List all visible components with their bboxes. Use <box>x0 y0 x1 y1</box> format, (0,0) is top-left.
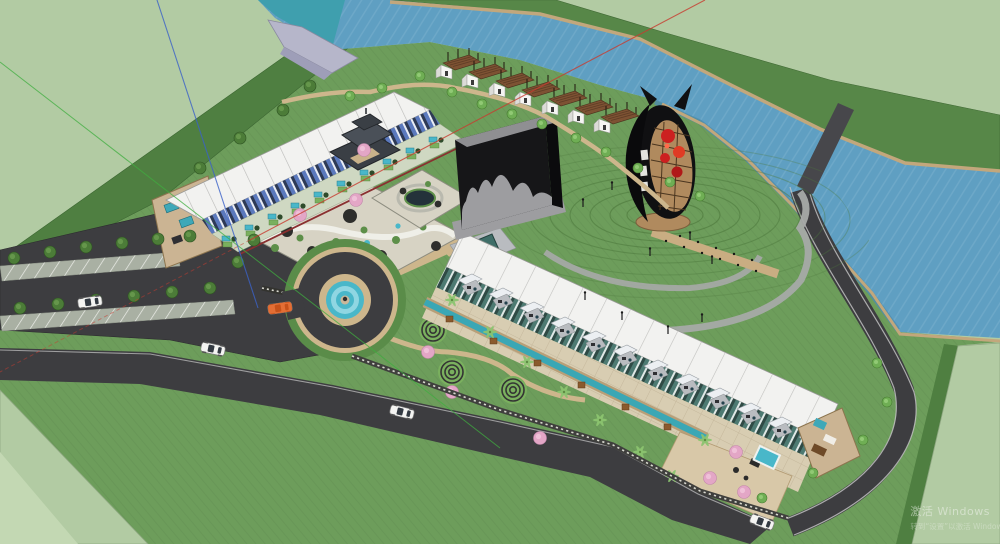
fountain-statue <box>343 297 347 301</box>
sketchup-viewport[interactable]: 激活 Windows 转到“设置”以激活 Windows。 <box>0 0 1000 544</box>
lawn-spiral <box>499 376 527 404</box>
lawn-spiral <box>438 358 466 386</box>
